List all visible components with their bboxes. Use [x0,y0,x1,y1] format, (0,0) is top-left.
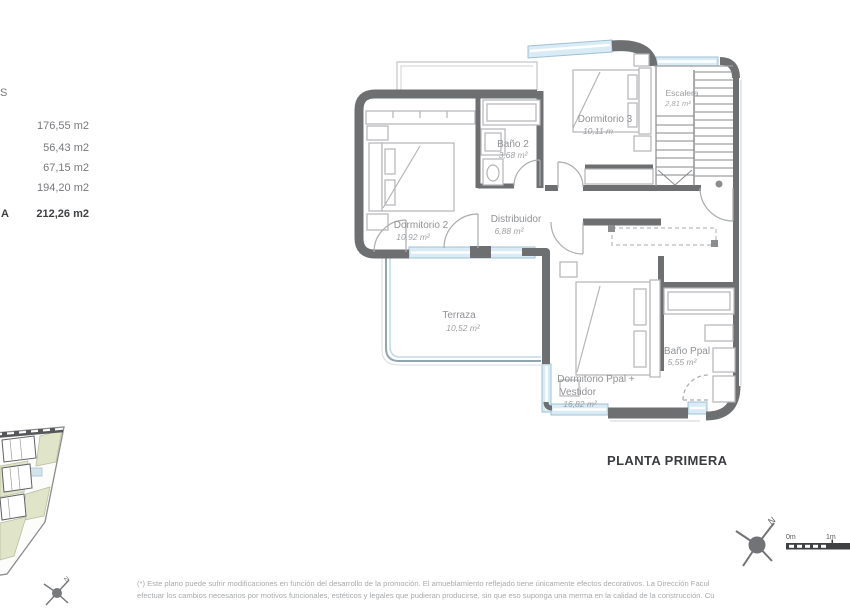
room-area-dormppal: 16,82 m² [563,399,598,409]
pillow [628,75,637,99]
room-label-terrace: Terraza [442,310,476,321]
door-dorm3 [558,162,583,188]
door-bath2 [514,160,540,186]
scale-bar: 0m 1m [786,534,850,550]
door-dormppal [551,222,583,254]
room-label-dormppal-2: Vestidor [560,387,597,398]
compass-small-n: N [63,575,71,584]
stair-direction-arrow [658,170,692,185]
siteplan-thumbnail [0,427,64,576]
scale-label-0m: 0m [786,534,796,541]
floorplan-page: S 176,55 m2 56,43 m2 67,15 m2 194,20 m2 … [0,0,850,614]
room-label-hall: Distribuidor [491,214,542,225]
compass-icon: N [736,515,777,566]
floor-plan-drawing: Dormitorio 2 10,92 m² Baño 2 3,68 m² Dor… [0,0,850,614]
room-area-stairs: 2,81 m² [664,99,691,108]
bathppal-fixtures [664,288,735,402]
stair-post [716,181,723,188]
room-area-dorm3: 10,11 m [583,126,613,136]
room-label-bath2: Baño 2 [497,139,529,150]
compass-small-icon: N [44,575,71,605]
headboard [650,280,660,377]
door-dorm2 [444,214,478,248]
disclaimer-line-2: efectuar los cambios necesarios por moti… [137,590,850,602]
headboard [639,68,651,134]
page-title: PLANTA PRIMERA [607,453,727,468]
disclaimer-line-1: (*) Este plano puede sufrir modificacion… [137,578,850,590]
pillow [385,149,395,174]
nightstand [367,126,388,140]
room-area-hall: 6,88 m² [495,226,525,236]
door-bathppal [683,375,708,400]
compass-n: N [766,515,777,527]
room-area-terrace: 10,52 m² [446,323,481,333]
room-label-dorm3: Dormitorio 3 [578,114,633,125]
stairs [654,66,733,188]
room-label-bathppal: Baño Ppal [664,346,710,357]
pillow [634,331,646,367]
nightstand [634,54,649,66]
nightstand [560,262,577,277]
nightstand [634,136,651,151]
pillow [634,289,646,325]
window-mullion [470,246,491,258]
disclaimer: (*) Este plano puede sufrir modificacion… [137,578,850,601]
sink [713,376,735,402]
vestidor-rail [608,225,718,247]
room-area-bath2: 3,68 m² [499,150,529,160]
bed-dorm2 [366,111,475,230]
room-area-dorm2: 10,92 m² [396,232,431,242]
room-label-stairs: Escalera [665,88,698,98]
headboard [369,143,382,211]
toilet [705,325,733,341]
sink [713,348,735,372]
room-label-dormppal: Dormitorio Ppal + [557,374,635,385]
wardrobe-dorm3 [585,169,653,184]
scale-label-1m: 1m [826,534,836,541]
room-label-dorm2: Dormitorio 2 [394,220,449,231]
door-stairs [700,188,733,221]
room-area-bathppal: 5,55 m² [668,357,698,367]
